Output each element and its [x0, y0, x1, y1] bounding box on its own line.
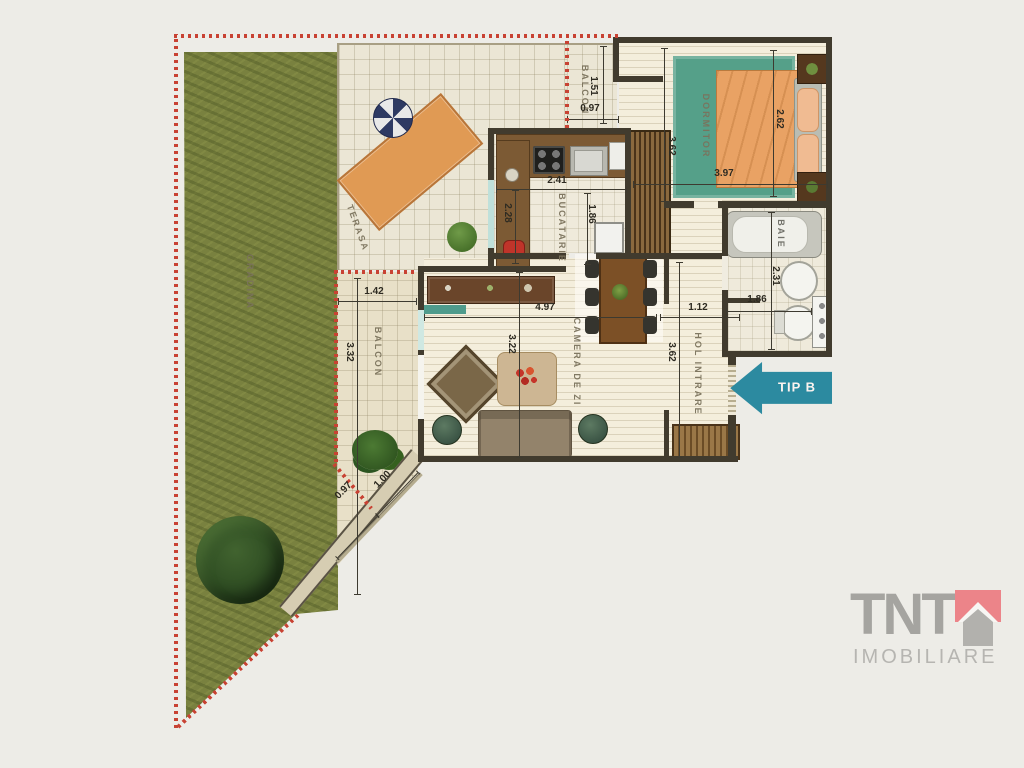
- dim-line: [661, 48, 668, 202]
- dim-label-living-w: 4.97: [535, 303, 554, 313]
- kitchen-sink-basin: [574, 150, 603, 172]
- bed-pillow: [797, 88, 819, 132]
- dim-label-balcon-left-w: 1.42: [364, 287, 383, 297]
- wall-hall-left-2: [664, 410, 669, 462]
- bath-door: [722, 256, 728, 290]
- dim-label-baie-w: 1.86: [747, 295, 766, 305]
- dim-label-bucatarie-left: 2.28: [502, 203, 512, 222]
- garden-area: [184, 52, 338, 718]
- wall-hall-top-2: [596, 253, 728, 259]
- dim-line: [676, 262, 683, 458]
- stove: [533, 146, 565, 174]
- balcony-door: [418, 355, 424, 419]
- dim-line: [600, 46, 607, 124]
- tip-b-label: TIP B: [764, 380, 830, 395]
- logo-tnt: TNT: [850, 586, 954, 644]
- wall-living-top: [418, 266, 566, 272]
- logo-subtitle: IMOBILIARE: [853, 646, 997, 669]
- dim-line: [567, 116, 619, 123]
- dim-line: [512, 190, 519, 264]
- dim-label-baie-h: 2.31: [770, 266, 780, 285]
- dim-label-balcon-top-h: 1.51: [588, 76, 598, 95]
- dim-line: [424, 314, 657, 321]
- dim-line: [338, 298, 417, 305]
- dim-line: [660, 314, 740, 321]
- dining-plant: [612, 284, 628, 300]
- wall-bath-bottom: [722, 351, 832, 357]
- dim-line: [726, 308, 812, 315]
- wall-kitchen-right: [625, 134, 631, 254]
- room-label-dormitor: DORMITOR: [701, 94, 711, 159]
- teal-runner: [424, 305, 466, 314]
- bath-sink: [780, 261, 818, 301]
- wall-top: [613, 37, 832, 43]
- dim-label-bucatarie-w: 2.41: [547, 176, 566, 186]
- wall-l-horiz: [613, 76, 663, 82]
- dim-label-hol-w: 1.12: [688, 303, 707, 313]
- dim-line: [633, 181, 828, 188]
- side-table-left: [432, 415, 462, 445]
- dim-line: [354, 278, 361, 595]
- wall-right: [826, 37, 832, 357]
- terrace-bush: [447, 222, 477, 252]
- side-table-right: [578, 414, 608, 444]
- kitchen-window: [488, 180, 494, 248]
- room-label-baie: BAIE: [776, 219, 786, 249]
- dining-table: [599, 256, 647, 344]
- dining-chair: [643, 260, 657, 278]
- dim-label-balcon-left-h: 3.32: [344, 342, 354, 361]
- wall-bed-bath-2: [718, 201, 832, 208]
- umbrella: [373, 98, 413, 138]
- nightstand: [797, 54, 827, 84]
- sofa: [478, 410, 572, 458]
- room-label-camera-de-zi: CAMERA DE ZI: [572, 318, 582, 407]
- floor-plan: 1.51 0.97 3.62 2.62 3.97 2.41 2.28 1.86 …: [0, 0, 1024, 768]
- fridge: [594, 222, 624, 254]
- boundary-dotted-left: [174, 34, 178, 728]
- boundary-dotted-balcony-top: [565, 38, 569, 128]
- garden-tree: [196, 516, 284, 604]
- dim-label-bucatarie-h: 1.86: [586, 204, 596, 223]
- room-label-hol-intrare: HOL INTRARE: [693, 332, 703, 415]
- counter-faucet: [505, 168, 519, 182]
- room-label-balcon-left: BALCON: [373, 327, 383, 378]
- dim-label-hol-h: 3.62: [666, 342, 676, 361]
- dining-chair: [585, 288, 599, 306]
- wall-kitchen-top: [488, 128, 631, 134]
- wall-hall-top-1: [488, 253, 566, 259]
- boundary-dotted-balcony-left-top: [334, 270, 418, 274]
- dim-label-dormitor-h: 3.62: [666, 136, 676, 155]
- wall-bottom: [418, 456, 738, 462]
- dining-chair: [643, 288, 657, 306]
- logo-house-icon: [955, 590, 1001, 651]
- tip-b-arrow: TIP B: [726, 358, 832, 416]
- wall-bed-bath-1: [664, 201, 694, 208]
- room-label-gradina: GRADINA: [245, 254, 255, 310]
- dim-label-living-h: 3.22: [506, 334, 516, 353]
- dim-label-bed-len: 2.62: [774, 109, 784, 128]
- wall-hall-left-1: [664, 258, 669, 304]
- dim-line: [516, 272, 523, 458]
- boundary-dotted-balcony-left: [334, 270, 338, 462]
- room-label-bucatarie: BUCATARIE: [557, 193, 567, 263]
- boundary-dotted-top: [174, 34, 620, 38]
- dim-label-dormitor-w: 3.97: [714, 169, 733, 179]
- dim-label-balcon-top-w: 0.97: [580, 104, 599, 114]
- console-decor: [440, 283, 540, 293]
